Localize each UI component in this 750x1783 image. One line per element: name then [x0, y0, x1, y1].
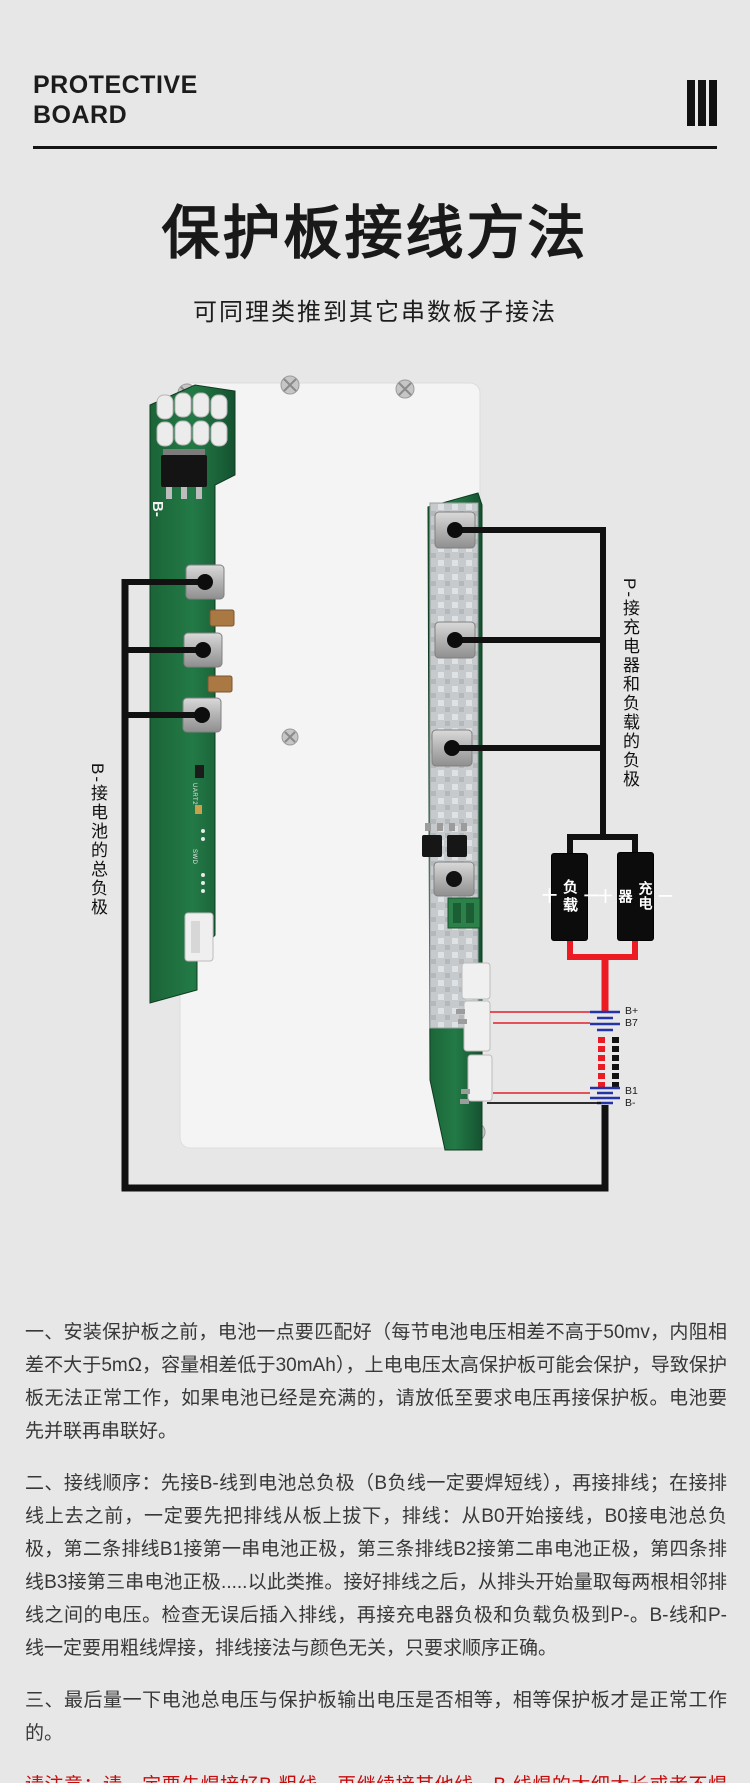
instruction-step-3: 三、最后量一下电池总电压与保护板输出电压是否相等，相等保护板才是正常工作的。 [25, 1684, 727, 1750]
warning-line1: 请注意：请一定要先焊接好B-粗线，再继续接其他线，B-线焊的太细太长或者不焊会烧… [25, 1775, 727, 1783]
load-plus-sign: 十 [538, 879, 559, 915]
instruction-step-2: 二、接线顺序：先接B-线到电池总负极（B负线一定要焊短线），再接排线；在接排线上… [25, 1467, 727, 1665]
battery-symbol-top [590, 1012, 620, 1030]
header-divider [33, 146, 717, 149]
charger-minus-sign: 一 [656, 875, 676, 919]
instruction-step-1: 一、安装保护板之前，电池一点要匹配好（每节电池电压相差不高于50mv，内阻相差不… [25, 1316, 727, 1448]
battery-symbol-bottom [590, 1088, 620, 1103]
right-pcb-strip [422, 493, 492, 1150]
balance-sense-wires [487, 1012, 601, 1103]
board-photo-art [45, 335, 705, 1215]
mosfet [161, 449, 207, 499]
dashed-continuation [598, 1037, 619, 1088]
warning-text: 请注意：请一定要先焊接好B-粗线，再继续接其他线，B-线焊的太细太长或者不焊会烧… [25, 1769, 727, 1783]
charger-plus-sign: 十 [596, 875, 616, 919]
output-pad [434, 862, 474, 896]
three-bars-icon [687, 80, 717, 126]
red-power-wire [567, 939, 638, 1012]
silkscreen-swd: SWD [191, 849, 197, 865]
silkscreen-uart: UART2 [191, 783, 197, 805]
charger-label: 充电器 [616, 875, 656, 919]
label-b1: B1 [625, 1085, 638, 1097]
note-b-minus-battery: B-接电池的总负极 [85, 763, 110, 928]
load-label: 负载 [559, 879, 580, 915]
wiring-diagram: B- UART2 SWD B-接电池的总负极 P-接充电器和负载的负极 一负载十… [45, 335, 705, 1215]
label-b7: B7 [625, 1017, 638, 1029]
page-title: 保护板接线方法 [0, 186, 750, 270]
note-p-minus-charger-load: P-接充电器和负载的负极 [617, 578, 642, 793]
brand-line2: BOARD [33, 100, 198, 130]
label-b-plus: B+ [625, 1005, 638, 1017]
page-subtitle: 可同理类推到其它串数板子接法 [0, 292, 750, 327]
green-terminal-block [448, 898, 480, 928]
instruction-text-block: 一、安装保护板之前，电池一点要匹配好（每节电池电压相差不高于50mv，内阻相差不… [25, 1316, 727, 1783]
brand-line1: PROTECTIVE [33, 70, 198, 100]
silkscreen-b-minus: B- [149, 501, 166, 517]
page-background: PROTECTIVE BOARD 保护板接线方法 可同理类推到其它串数板子接法 [0, 0, 750, 1783]
label-b-minus: B- [625, 1097, 636, 1109]
charger-terminal-box: 一充电器十 [618, 853, 653, 940]
brand-logo: PROTECTIVE BOARD [33, 70, 198, 130]
load-terminal-box: 一负载十 [552, 854, 587, 940]
